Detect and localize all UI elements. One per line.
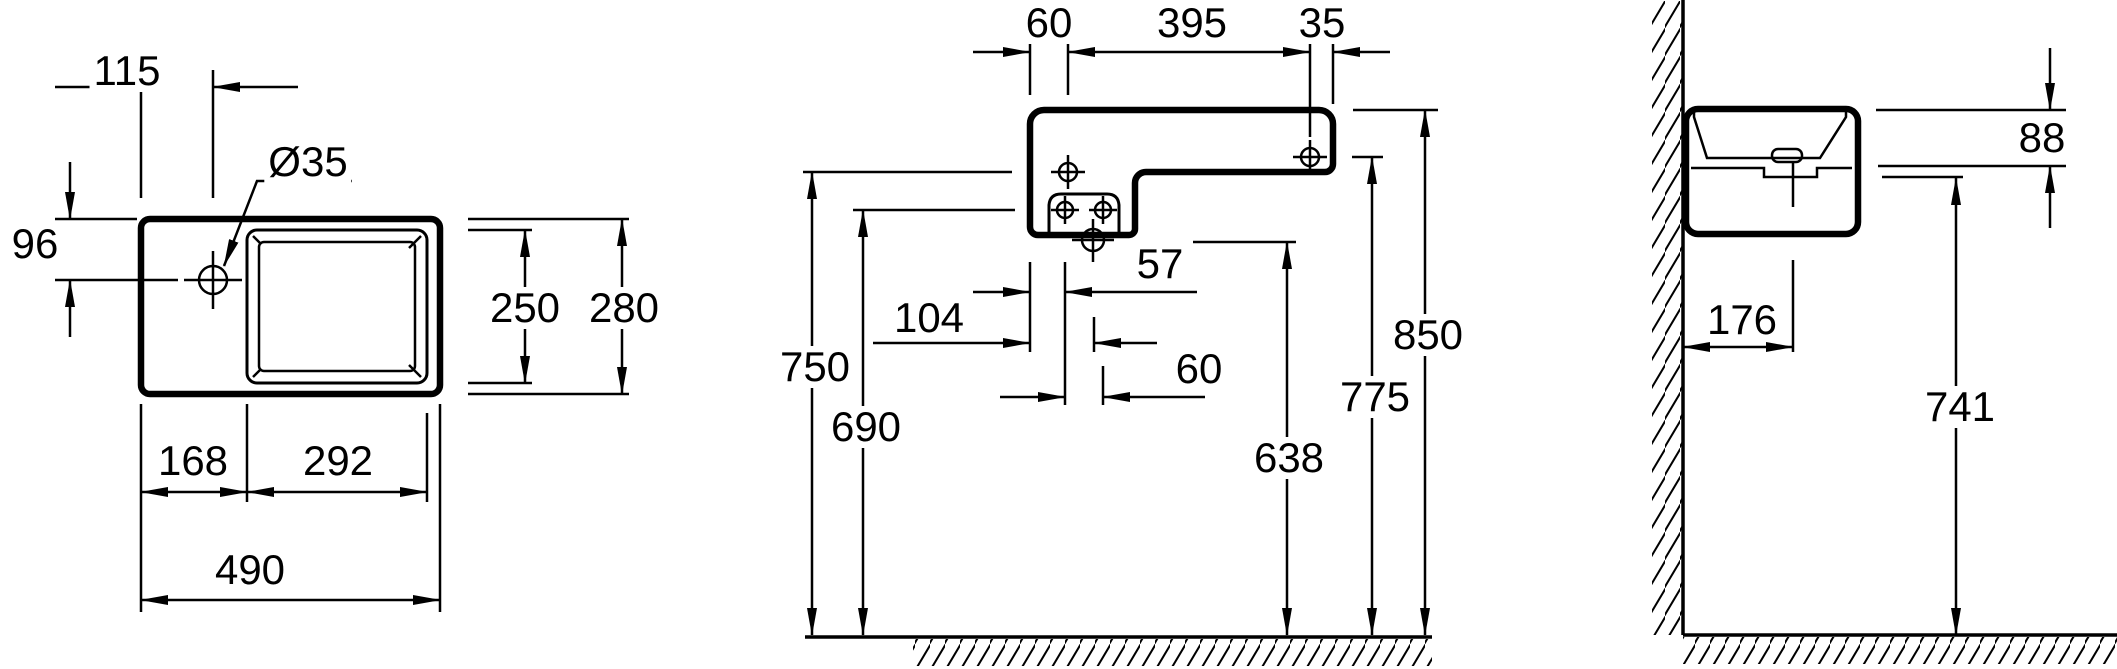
basin-outline-top (141, 219, 440, 394)
dim-label-floor-to-underside: 741 (1921, 386, 1999, 428)
dim-label-height-underside: 750 (776, 346, 854, 388)
faucet-hole-crosshair (184, 251, 242, 309)
front-view (803, 43, 1438, 666)
dim-label-height-drain: 638 (1250, 437, 1328, 479)
faucet-diameter-leader (224, 181, 352, 266)
bracket-hole-left-crosshair (1051, 196, 1079, 224)
bowl-corner-bevel (253, 369, 261, 377)
bowl-profile (1694, 111, 1846, 158)
bowl-bottom (259, 242, 415, 371)
drain-plug (1772, 149, 1802, 162)
dim-label-ledge-width: 168 (154, 440, 232, 482)
bowl-rim (247, 230, 427, 383)
dim-label-overall-depth: 280 (585, 287, 663, 329)
dim-label-faucet-diameter: Ø35 (264, 141, 351, 183)
dim-label-faucet-offset-y: 96 (8, 223, 63, 265)
dim-label-right-hole-offset: 35 (1295, 2, 1350, 44)
dim-label-bracket-hole-offset: 57 (1133, 243, 1188, 285)
dim-label-bracket-holes-spacing: 60 (1172, 348, 1227, 390)
dim-label-wall-to-drain: 176 (1703, 299, 1781, 341)
dim-label-rim-to-underside: 88 (2015, 117, 2070, 159)
dim-label-overall-width: 490 (211, 549, 289, 591)
drain-crosshair (1072, 219, 1114, 262)
underside-ledge (1691, 168, 1852, 177)
drawing-linework (0, 0, 2117, 669)
dim-label-height-right-hole: 775 (1336, 376, 1414, 418)
basin-outline-side (1686, 109, 1858, 234)
dim-label-left-hole-offset: 60 (1022, 2, 1077, 44)
dim-label-faucet-offset-x: 115 (90, 50, 165, 92)
dim-label-bowl-width: 292 (299, 440, 377, 482)
dim-label-height-rim: 850 (1389, 314, 1467, 356)
wall-hatching (1652, 1, 1683, 635)
dim-label-bowl-depth: 250 (486, 287, 564, 329)
technical-drawing: 115 Ø35 96 250 280 168 292 490 60 395 35… (0, 0, 2117, 669)
dim-label-drain-axis-offset: 104 (890, 297, 968, 339)
dim-label-height-bracket-holes: 690 (827, 406, 905, 448)
floor-hatching (913, 639, 1432, 666)
fixing-hole-left-crosshair (1051, 155, 1085, 189)
dim-label-holes-spacing: 395 (1153, 2, 1231, 44)
floor-hatching (1683, 637, 2117, 664)
bowl-corner-bevel (253, 236, 261, 244)
